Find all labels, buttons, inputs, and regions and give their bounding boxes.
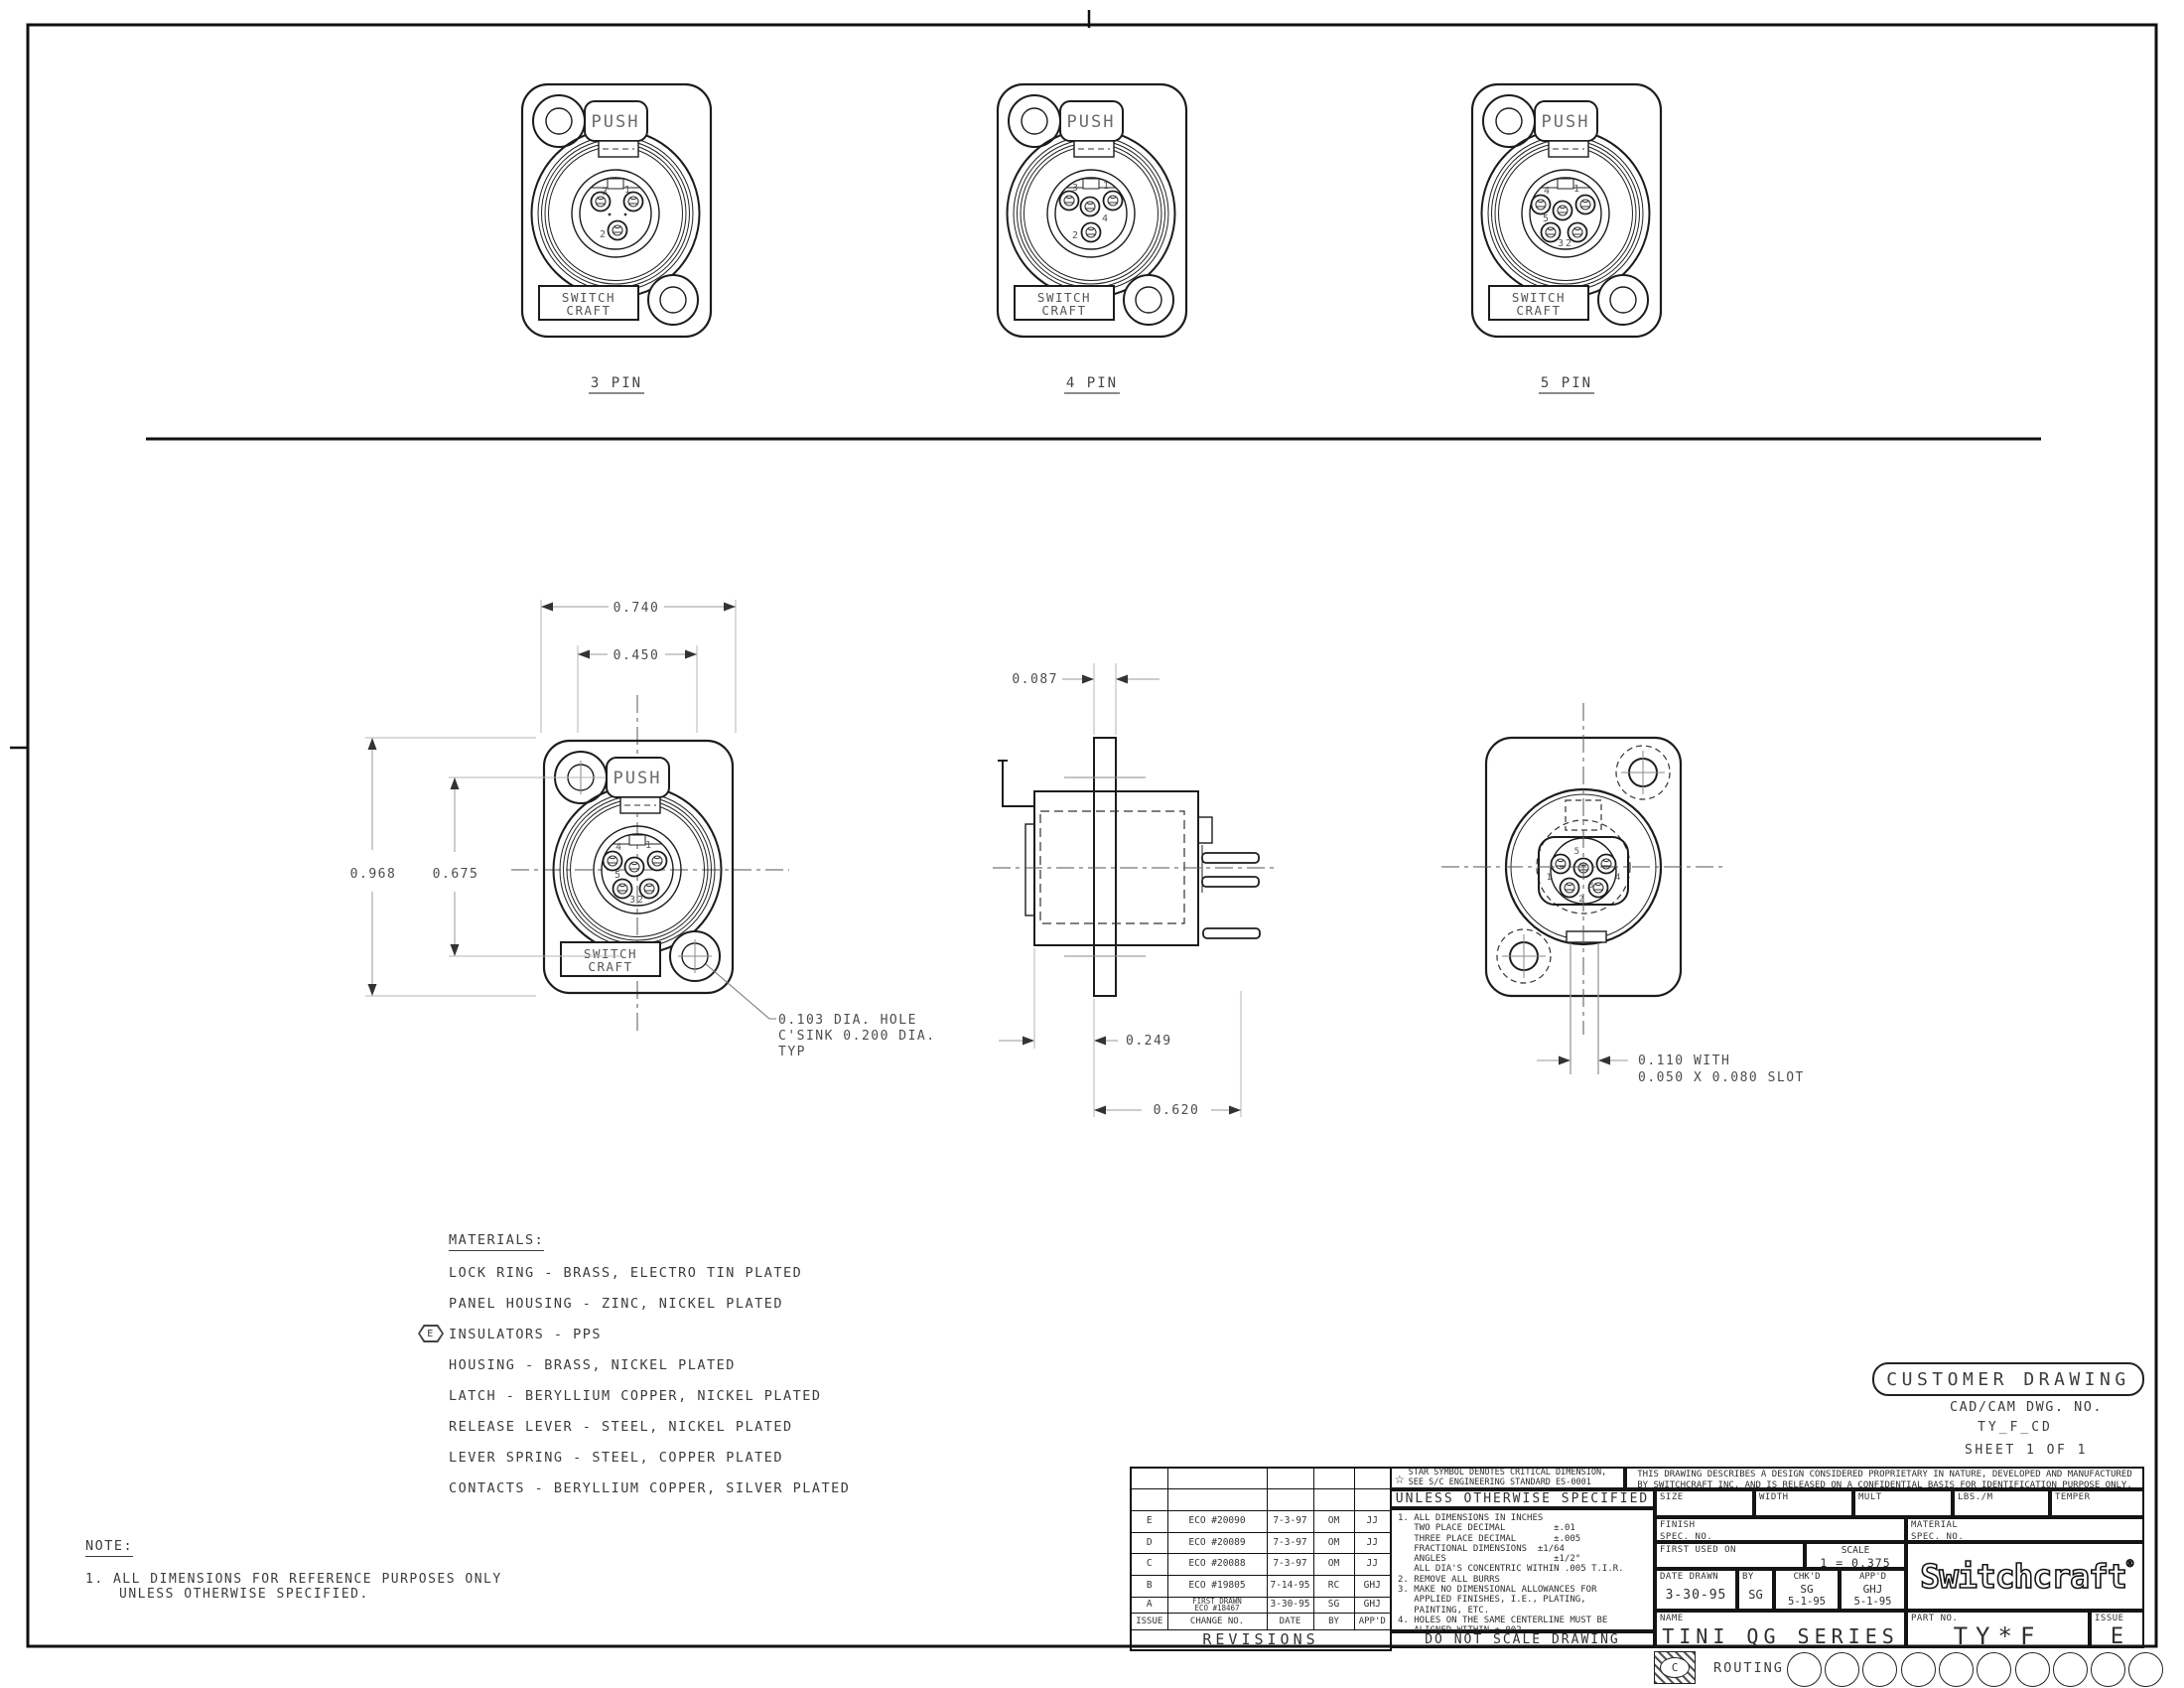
sheet-number: SHEET 1 OF 1 xyxy=(1912,1443,2140,1458)
unless-otherwise-specified-band: UNLESS OTHERWISE SPECIFIED xyxy=(1390,1489,1655,1508)
corner-mark: C xyxy=(1660,1657,1690,1678)
view-4pin: PUSH 3 1 4 2 SWITCH CRAFT xyxy=(998,84,1186,337)
svg-text:Switchcraft: Switchcraft xyxy=(1920,1557,2126,1596)
push-label: PUSH xyxy=(614,769,662,788)
rear-dimension-arrows xyxy=(1559,1056,1610,1065)
pin-number: 2 xyxy=(637,895,643,906)
cad-dwg-label: CAD/CAM DWG. NO. xyxy=(1912,1399,2140,1415)
mult-field: MULT xyxy=(1853,1489,1953,1517)
hole-callout-line3: TYP xyxy=(778,1045,806,1059)
switchcraft-logo: Switchcraft ® xyxy=(1908,1544,2142,1609)
material-item: LATCH - BERYLLIUM COPPER, NICKEL PLATED xyxy=(449,1388,850,1419)
pin-number: 5 xyxy=(614,870,620,881)
view-3pin: PUSH 3 1 2 SWITCH CRAFT xyxy=(522,84,711,337)
finish-field: FINISH SPEC. NO. xyxy=(1655,1517,1906,1542)
corner-mark-box: C xyxy=(1654,1651,1696,1684)
view-side xyxy=(993,738,1276,996)
material-item: LOCK RING - BRASS, ELECTRO TIN PLATED xyxy=(449,1265,850,1296)
pin-number: 4 xyxy=(615,842,621,853)
pin-number: 5 xyxy=(1543,213,1549,224)
material-item: HOUSING - BRASS, NICKEL PLATED xyxy=(449,1357,850,1388)
table-header-row: ISSUECHANGE NO.DATEBYAPP'D xyxy=(1131,1614,1391,1630)
note-line: UNLESS OTHERWISE SPECIFIED. xyxy=(119,1587,502,1602)
routing-label: ROUTING xyxy=(1713,1660,1784,1676)
scale-field: SCALE 1 = 0.375 xyxy=(1805,1542,1906,1569)
do-not-scale-band: DO NOT SCALE DRAWING xyxy=(1390,1631,1655,1648)
view-rear: 5 1 4 3 2 xyxy=(1441,703,1727,1074)
pin-number: 3 xyxy=(629,895,635,906)
slot-callout-line2: 0.050 X 0.080 SLOT xyxy=(1638,1070,1805,1085)
routing-circle xyxy=(1825,1652,1859,1687)
routing-circle xyxy=(1787,1652,1822,1687)
table-row: EECO #200907-3-97OMJJ xyxy=(1131,1510,1391,1532)
pin-number: 1 xyxy=(645,840,651,851)
pin-number: 1 xyxy=(624,185,630,196)
approved-field: APP'D GHJ 5-1-95 xyxy=(1840,1569,1906,1611)
first-used-on-field: FIRST USED ON xyxy=(1655,1542,1805,1569)
svg-text:®: ® xyxy=(2126,1557,2134,1571)
drawing-sheet: PUSH 3 1 2 SWITCH CRAFT 3 PIN PUSH 3 1 4… xyxy=(0,0,2184,1688)
table-row: DECO #200897-3-97OMJJ xyxy=(1131,1532,1391,1553)
pin-number: 3 xyxy=(1588,881,1593,891)
table-row: AFIRST DRAWN ECO #184673-30-95SGGHJ xyxy=(1131,1597,1391,1614)
table-title-row: REVISIONS xyxy=(1131,1630,1391,1650)
note-title: NOTE: xyxy=(85,1538,133,1557)
sheet-border xyxy=(28,25,2156,1646)
routing-circle xyxy=(1977,1652,2011,1687)
view-label-5pin: 5 PIN xyxy=(1541,375,1592,391)
name-field: NAME TINI QG SERIES xyxy=(1655,1611,1906,1648)
side-dimension-arrows xyxy=(1023,675,1241,1115)
dim-hole-spacing: 0.675 xyxy=(433,867,479,882)
routing-circle xyxy=(2128,1652,2163,1687)
slot-callout-line1: 0.110 WITH xyxy=(1638,1054,1730,1068)
series-name: TINI QG SERIES xyxy=(1657,1624,1904,1648)
hole-callout-line2: C'SINK 0.200 DIA. xyxy=(778,1029,936,1044)
material-item: PANEL HOUSING - ZINC, NICKEL PLATED xyxy=(449,1296,850,1327)
dim-width: 0.740 xyxy=(614,601,660,616)
dim-height: 0.968 xyxy=(350,867,397,882)
cad-dwg-number: TY_F_CD xyxy=(1906,1420,2124,1435)
routing-circle xyxy=(1862,1652,1897,1687)
pin-number: 3 xyxy=(1558,238,1564,249)
pin-number: 1 xyxy=(1573,184,1579,195)
pin-number: 2 xyxy=(600,229,606,240)
revisions-table: EECO #200907-3-97OMJJ DECO #200897-3-97O… xyxy=(1130,1467,1392,1651)
brand-label: CRAFT xyxy=(566,303,611,318)
hole-callout-line1: 0.103 DIA. HOLE xyxy=(778,1013,917,1028)
pin-number: 5 xyxy=(1574,847,1579,857)
checked-field: CHK'D SG 5-1-95 xyxy=(1774,1569,1840,1611)
by-field: BY SG xyxy=(1737,1569,1774,1611)
size-field: SIZE xyxy=(1655,1489,1754,1517)
drawing-linework: PUSH 3 1 2 SWITCH CRAFT 3 PIN PUSH 3 1 4… xyxy=(0,0,2184,1688)
dim-front-depth: 0.249 xyxy=(1126,1034,1172,1049)
pin-number: 1 xyxy=(1547,873,1552,883)
material-item: CONTACTS - BERYLLIUM COPPER, SILVER PLAT… xyxy=(449,1480,850,1511)
push-label: PUSH xyxy=(1067,112,1116,132)
pin-number: 2 xyxy=(1566,238,1571,249)
pin-number: 3 xyxy=(1072,183,1078,194)
proprietary-statement: THIS DRAWING DESCRIBES A DESIGN CONSIDER… xyxy=(1625,1467,2144,1489)
brand-label: CRAFT xyxy=(1516,303,1561,318)
pin-number: 4 xyxy=(1615,873,1620,883)
logo-box: Switchcraft ® xyxy=(1906,1542,2144,1611)
brand-label: CRAFT xyxy=(1041,303,1086,318)
material-item: E INSULATORS - PPS xyxy=(449,1327,850,1357)
table-row: CECO #200887-3-97OMJJ xyxy=(1131,1553,1391,1575)
view-5pin: PUSH 4 1 5 3 2 SWITCH CRAFT xyxy=(1472,84,1661,337)
material-field: MATERIAL SPEC. NO. xyxy=(1906,1517,2144,1542)
pin-number: 2 xyxy=(1072,230,1078,241)
tolerance-notes: 1. ALL DIMENSIONS IN INCHES TWO PLACE DE… xyxy=(1390,1508,1655,1631)
view-label-4pin: 4 PIN xyxy=(1066,375,1118,391)
issue-letter: E xyxy=(2092,1624,2142,1649)
star-icon: ☆ xyxy=(1395,1471,1405,1486)
view-front-dimensioned: PUSH 4 1 5 3 2 SWITCH CRAFT xyxy=(544,741,733,993)
pin-number: 4 xyxy=(1544,186,1550,197)
material-item: RELEASE LEVER - STEEL, NICKEL PLATED xyxy=(449,1419,850,1450)
star-symbol-note: ☆ STAR SYMBOL DENOTES CRITICAL DIMENSION… xyxy=(1390,1467,1625,1489)
routing-circle xyxy=(1901,1652,1936,1687)
dim-panel-thickness: 0.087 xyxy=(1012,672,1058,687)
pin-number: 4 xyxy=(1102,213,1108,224)
materials-list: MATERIALS: LOCK RING - BRASS, ELECTRO TI… xyxy=(449,1229,850,1511)
lbs-field: LBS./M xyxy=(1953,1489,2050,1517)
routing-circle xyxy=(2091,1652,2125,1687)
dim-rear-depth: 0.620 xyxy=(1154,1103,1200,1118)
material-item: LEVER SPRING - STEEL, COPPER PLATED xyxy=(449,1450,850,1480)
part-number: TY*F xyxy=(1908,1622,2088,1650)
side-extension-lines xyxy=(1034,663,1241,1117)
temper-field: TEMPER xyxy=(2050,1489,2144,1517)
brand-label: CRAFT xyxy=(588,959,632,974)
view-label-3pin: 3 PIN xyxy=(591,375,642,391)
routing-circle xyxy=(2053,1652,2088,1687)
part-number-field: PART NO. TY*F xyxy=(1906,1611,2090,1648)
routing-circle xyxy=(1939,1652,1974,1687)
pin-number: 1 xyxy=(1103,181,1109,192)
table-row xyxy=(1131,1488,1391,1510)
materials-title: MATERIALS: xyxy=(449,1232,544,1251)
note-line: 1. ALL DIMENSIONS FOR REFERENCE PURPOSES… xyxy=(85,1572,502,1587)
table-row: BECO #198057-14-95RCGHJ xyxy=(1131,1575,1391,1597)
issue-field: ISSUE E xyxy=(2090,1611,2144,1648)
pin-number: 3 xyxy=(602,187,608,198)
customer-drawing-stamp: CUSTOMER DRAWING xyxy=(1872,1362,2144,1396)
push-label: PUSH xyxy=(592,112,640,132)
push-label: PUSH xyxy=(1542,112,1590,132)
width-field: WIDTH xyxy=(1754,1489,1853,1517)
routing-circle xyxy=(2015,1652,2050,1687)
dim-latch-width: 0.450 xyxy=(614,648,660,663)
date-drawn-field: DATE DRAWN 3-30-95 xyxy=(1655,1569,1737,1611)
table-row xyxy=(1131,1468,1391,1488)
note-block: NOTE: 1. ALL DIMENSIONS FOR REFERENCE PU… xyxy=(85,1535,502,1602)
